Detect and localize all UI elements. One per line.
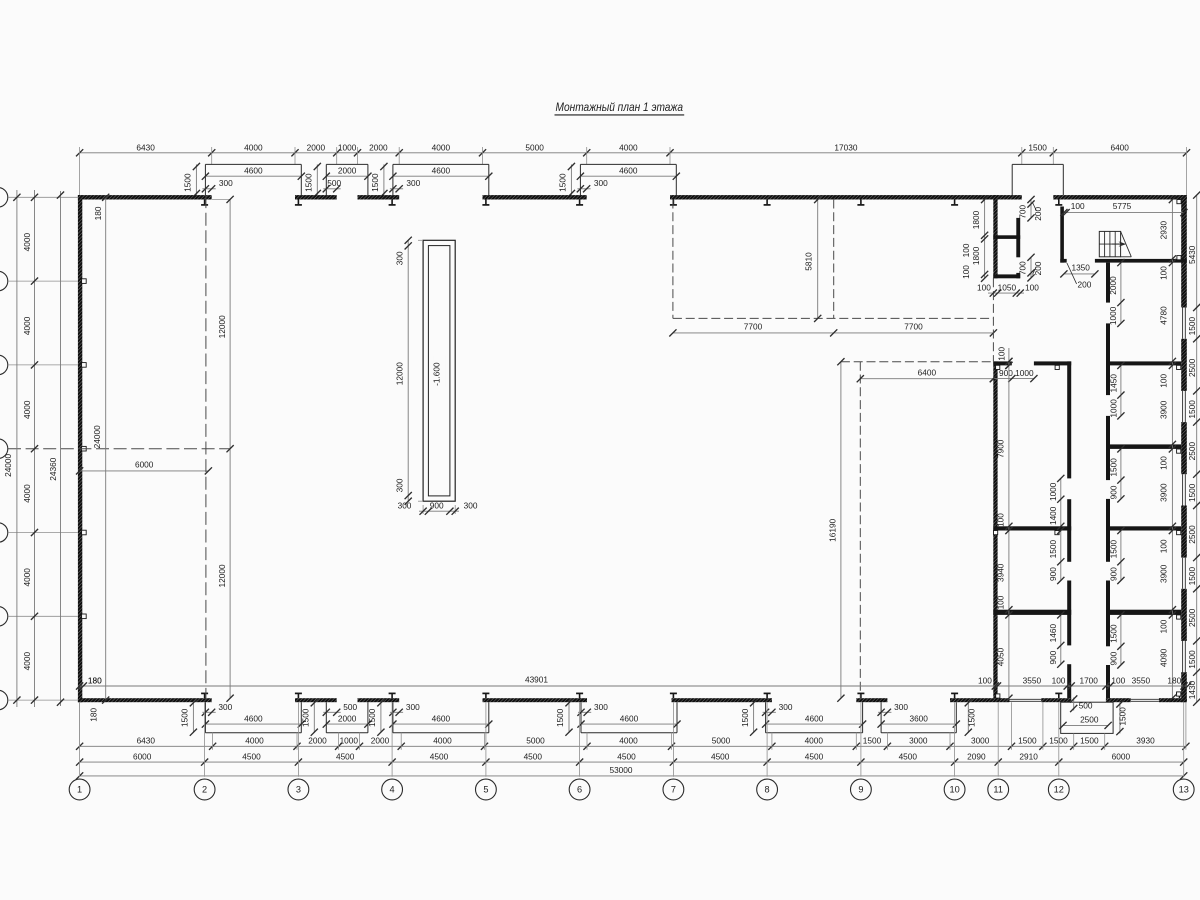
svg-text:4500: 4500: [242, 752, 261, 762]
svg-text:1500: 1500: [1108, 624, 1118, 643]
svg-text:4780: 4780: [1158, 306, 1168, 325]
svg-text:180: 180: [1167, 675, 1181, 685]
svg-text:5000: 5000: [525, 142, 544, 152]
svg-text:1350: 1350: [1071, 262, 1090, 272]
svg-text:300: 300: [219, 178, 233, 188]
svg-text:300: 300: [398, 501, 412, 511]
svg-text:4000: 4000: [22, 484, 32, 503]
svg-text:300: 300: [406, 702, 420, 712]
svg-text:17030: 17030: [834, 142, 857, 152]
svg-text:4500: 4500: [711, 752, 730, 762]
svg-text:100: 100: [977, 283, 991, 293]
svg-text:4500: 4500: [336, 752, 355, 762]
svg-text:2500: 2500: [1187, 358, 1197, 377]
svg-text:4050: 4050: [996, 647, 1006, 666]
svg-text:4000: 4000: [619, 736, 638, 746]
svg-text:1000: 1000: [1108, 306, 1118, 325]
svg-text:200: 200: [1033, 261, 1043, 275]
svg-text:4000: 4000: [433, 736, 452, 746]
svg-text:7700: 7700: [904, 322, 923, 332]
svg-text:300: 300: [894, 702, 908, 712]
svg-text:3940: 3940: [996, 563, 1006, 582]
svg-text:2500: 2500: [1187, 441, 1197, 460]
svg-text:8: 8: [765, 785, 770, 795]
svg-text:3000: 3000: [971, 736, 990, 746]
svg-text:1500: 1500: [555, 708, 565, 727]
svg-text:Монтажный план 1 этажа: Монтажный план 1 этажа: [556, 100, 684, 114]
svg-text:4600: 4600: [619, 165, 638, 175]
svg-text:100: 100: [961, 265, 971, 279]
svg-text:1800: 1800: [971, 246, 981, 265]
svg-text:180: 180: [88, 707, 98, 721]
svg-text:11: 11: [993, 785, 1003, 795]
svg-text:100: 100: [1071, 201, 1085, 211]
svg-text:900: 900: [1048, 567, 1058, 581]
svg-text:1500: 1500: [863, 736, 882, 746]
svg-text:5430: 5430: [1187, 245, 1197, 264]
svg-text:24000: 24000: [92, 425, 102, 448]
svg-text:4000: 4000: [22, 400, 32, 419]
svg-text:1450: 1450: [1108, 374, 1118, 393]
svg-text:3930: 3930: [1136, 736, 1155, 746]
svg-text:100: 100: [978, 675, 992, 685]
svg-text:4600: 4600: [432, 713, 451, 723]
svg-text:1500: 1500: [1018, 736, 1037, 746]
svg-text:1: 1: [77, 785, 82, 795]
svg-text:6000: 6000: [135, 459, 154, 469]
svg-text:9: 9: [858, 785, 863, 795]
svg-text:100: 100: [1158, 619, 1168, 633]
svg-text:1500: 1500: [301, 708, 311, 727]
svg-text:1800: 1800: [971, 210, 981, 229]
svg-text:1500: 1500: [1187, 483, 1197, 502]
svg-text:1000: 1000: [1108, 399, 1118, 418]
svg-text:2000: 2000: [338, 713, 357, 723]
svg-text:1500: 1500: [180, 708, 190, 727]
svg-text:4500: 4500: [617, 752, 636, 762]
svg-text:900: 900: [430, 501, 444, 511]
svg-text:6000: 6000: [133, 752, 152, 762]
svg-text:4600: 4600: [432, 165, 451, 175]
svg-text:1500: 1500: [1108, 458, 1118, 477]
svg-text:4000: 4000: [805, 736, 824, 746]
svg-text:3000: 3000: [909, 736, 928, 746]
svg-text:3550: 3550: [1132, 675, 1151, 685]
svg-text:500: 500: [327, 178, 341, 188]
svg-text:1500: 1500: [740, 708, 750, 727]
svg-text:3900: 3900: [1158, 483, 1168, 502]
svg-text:1500: 1500: [1118, 707, 1128, 726]
svg-text:1400: 1400: [1048, 506, 1058, 525]
svg-text:4: 4: [390, 785, 395, 795]
svg-text:1500: 1500: [182, 173, 192, 192]
svg-text:1700: 1700: [1079, 675, 1098, 685]
svg-text:100: 100: [1025, 283, 1039, 293]
svg-text:200: 200: [1033, 206, 1043, 220]
svg-text:300: 300: [779, 702, 793, 712]
svg-text:900: 900: [1108, 485, 1118, 499]
svg-text:3900: 3900: [1158, 564, 1168, 583]
svg-text:1000: 1000: [340, 736, 359, 746]
svg-text:3550: 3550: [1023, 675, 1042, 685]
svg-text:16190: 16190: [828, 518, 838, 541]
svg-text:4000: 4000: [22, 568, 32, 587]
svg-text:4600: 4600: [620, 713, 639, 723]
svg-text:2000: 2000: [338, 165, 357, 175]
svg-text:500: 500: [1079, 701, 1093, 711]
svg-text:100: 100: [1052, 675, 1066, 685]
svg-text:300: 300: [394, 478, 404, 492]
svg-text:4000: 4000: [432, 142, 451, 152]
svg-text:12: 12: [1054, 785, 1064, 795]
svg-text:100: 100: [996, 595, 1006, 609]
svg-text:7700: 7700: [744, 322, 763, 332]
svg-text:4500: 4500: [805, 752, 824, 762]
svg-text:300: 300: [464, 501, 478, 511]
svg-text:4000: 4000: [22, 316, 32, 335]
svg-text:2500: 2500: [1187, 525, 1197, 544]
svg-text:180: 180: [93, 206, 103, 220]
svg-text:1500: 1500: [1187, 650, 1197, 669]
svg-text:1000: 1000: [338, 142, 357, 152]
svg-text:4000: 4000: [245, 736, 264, 746]
svg-text:4000: 4000: [619, 142, 638, 152]
svg-text:3: 3: [296, 785, 301, 795]
svg-text:6: 6: [577, 785, 582, 795]
svg-text:1500: 1500: [1187, 316, 1197, 335]
svg-text:1000: 1000: [1015, 368, 1034, 378]
svg-text:1500: 1500: [370, 173, 380, 192]
svg-text:1500: 1500: [1080, 736, 1099, 746]
svg-text:300: 300: [594, 702, 608, 712]
svg-text:3900: 3900: [1158, 400, 1168, 419]
svg-text:4500: 4500: [899, 752, 918, 762]
svg-text:100: 100: [1158, 456, 1168, 470]
svg-text:300: 300: [218, 702, 232, 712]
svg-text:4500: 4500: [430, 752, 449, 762]
svg-text:7: 7: [671, 785, 676, 795]
svg-text:1500: 1500: [1187, 566, 1197, 585]
svg-text:5: 5: [483, 785, 488, 795]
svg-text:7900: 7900: [996, 439, 1006, 458]
svg-text:1430: 1430: [1187, 680, 1197, 699]
svg-text:100: 100: [1158, 539, 1168, 553]
svg-text:10: 10: [949, 785, 959, 795]
svg-text:900: 900: [999, 368, 1013, 378]
svg-text:6000: 6000: [1112, 752, 1131, 762]
svg-text:1500: 1500: [1028, 142, 1047, 152]
svg-text:6430: 6430: [137, 736, 156, 746]
svg-text:700: 700: [1018, 204, 1028, 218]
svg-text:2000: 2000: [308, 736, 327, 746]
svg-text:300: 300: [594, 178, 608, 188]
svg-text:100: 100: [996, 513, 1006, 527]
svg-text:100: 100: [996, 346, 1006, 360]
svg-text:5810: 5810: [804, 252, 814, 271]
svg-text:12000: 12000: [217, 315, 227, 338]
svg-text:4600: 4600: [805, 713, 824, 723]
svg-text:1500: 1500: [966, 708, 976, 727]
svg-text:43901: 43901: [525, 675, 548, 685]
svg-text:1500: 1500: [1048, 539, 1058, 558]
svg-text:2930: 2930: [1158, 220, 1168, 239]
svg-text:2910: 2910: [1019, 752, 1038, 762]
svg-text:13: 13: [1179, 785, 1189, 795]
svg-text:5000: 5000: [526, 736, 545, 746]
svg-text:12000: 12000: [394, 362, 404, 385]
svg-text:300: 300: [394, 251, 404, 265]
svg-text:4500: 4500: [524, 752, 543, 762]
svg-text:4000: 4000: [22, 651, 32, 670]
svg-text:5775: 5775: [1113, 201, 1132, 211]
svg-text:53000: 53000: [609, 765, 632, 775]
svg-text:1500: 1500: [367, 708, 377, 727]
svg-text:6400: 6400: [1110, 142, 1129, 152]
svg-text:180: 180: [88, 675, 102, 685]
svg-text:2500: 2500: [1187, 608, 1197, 627]
svg-text:-1.600: -1.600: [432, 362, 442, 386]
svg-text:1000: 1000: [1048, 482, 1058, 501]
svg-text:6400: 6400: [918, 367, 937, 377]
svg-text:2000: 2000: [369, 142, 388, 152]
svg-text:4000: 4000: [22, 232, 32, 251]
svg-text:2000: 2000: [371, 736, 390, 746]
svg-text:1500: 1500: [557, 173, 567, 192]
svg-text:1500: 1500: [303, 173, 313, 192]
svg-text:4600: 4600: [244, 713, 263, 723]
svg-text:2500: 2500: [1080, 715, 1099, 725]
svg-text:24360: 24360: [48, 457, 58, 480]
svg-text:1500: 1500: [1187, 400, 1197, 419]
svg-text:500: 500: [343, 702, 357, 712]
svg-text:4090: 4090: [1158, 648, 1168, 667]
svg-text:24000: 24000: [3, 453, 13, 476]
svg-text:700: 700: [1018, 261, 1028, 275]
svg-text:100: 100: [1158, 266, 1168, 280]
svg-text:900: 900: [1048, 650, 1058, 664]
svg-text:1050: 1050: [998, 283, 1017, 293]
svg-text:4600: 4600: [244, 165, 263, 175]
svg-text:5000: 5000: [712, 736, 731, 746]
svg-text:300: 300: [406, 178, 420, 188]
svg-text:100: 100: [1111, 675, 1125, 685]
svg-text:2: 2: [202, 785, 207, 795]
svg-text:12000: 12000: [217, 564, 227, 587]
svg-text:1460: 1460: [1048, 623, 1058, 642]
svg-text:900: 900: [1108, 567, 1118, 581]
svg-text:2000: 2000: [1108, 276, 1118, 295]
svg-text:200: 200: [1078, 279, 1092, 289]
svg-text:100: 100: [1158, 373, 1168, 387]
svg-text:100: 100: [961, 243, 971, 257]
svg-text:900: 900: [1108, 651, 1118, 665]
svg-text:2090: 2090: [967, 752, 986, 762]
svg-text:4000: 4000: [244, 142, 263, 152]
svg-text:3600: 3600: [909, 713, 928, 723]
svg-text:6430: 6430: [136, 142, 155, 152]
svg-text:1500: 1500: [1108, 539, 1118, 558]
svg-text:2000: 2000: [307, 142, 326, 152]
